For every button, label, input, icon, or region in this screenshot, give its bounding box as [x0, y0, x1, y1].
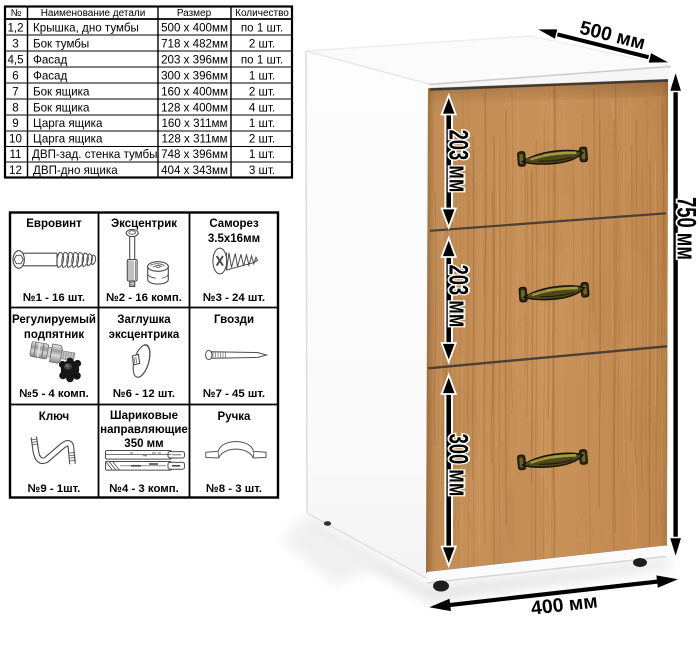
svg-text:№2 - 16 комп.: №2 - 16 комп. — [106, 292, 182, 304]
svg-text:по 1 шт.: по 1 шт. — [241, 54, 283, 67]
svg-text:подпятник: подпятник — [24, 329, 84, 341]
svg-text:ДВП-дно ящика: ДВП-дно ящика — [33, 164, 118, 177]
svg-text:№6 - 12 шт.: №6 - 12 шт. — [113, 388, 175, 400]
svg-text:1 шт.: 1 шт. — [249, 70, 275, 83]
svg-text:Заглушка: Заглушка — [117, 314, 171, 326]
svg-text:Фасад: Фасад — [33, 54, 68, 67]
svg-text:718 х 482мм: 718 х 482мм — [161, 38, 228, 51]
svg-text:№1 - 16 шт.: №1 - 16 шт. — [23, 292, 85, 304]
svg-text:Бок ящика: Бок ящика — [33, 102, 90, 115]
svg-text:Гвозди: Гвозди — [214, 314, 254, 326]
svg-text:12: 12 — [9, 164, 22, 177]
svg-text:8: 8 — [12, 102, 18, 115]
svg-text:2 шт.: 2 шт. — [249, 86, 275, 99]
svg-text:7: 7 — [12, 86, 18, 99]
svg-text:по 1 шт.: по 1 шт. — [241, 22, 283, 35]
svg-text:1 шт.: 1 шт. — [249, 117, 275, 130]
svg-text:203 мм: 203 мм — [444, 265, 474, 328]
svg-text:4 шт.: 4 шт. — [249, 102, 275, 115]
svg-text:160 х 400мм: 160 х 400мм — [161, 86, 228, 99]
svg-text:3: 3 — [12, 38, 18, 51]
svg-text:203 мм: 203 мм — [444, 130, 474, 193]
svg-text:11: 11 — [9, 148, 21, 161]
svg-text:Бок ящика: Бок ящика — [33, 86, 90, 99]
svg-text:Эксцентрик: Эксцентрик — [111, 218, 177, 230]
svg-text:Евровинт: Евровинт — [26, 218, 82, 230]
svg-text:3.5х16мм: 3.5х16мм — [208, 233, 260, 245]
svg-text:ДВП-зад. стенка тумбы: ДВП-зад. стенка тумбы — [32, 148, 158, 161]
svg-text:404 х 343мм: 404 х 343мм — [161, 164, 228, 177]
svg-text:Саморез: Саморез — [209, 218, 259, 230]
svg-text:Шариковые: Шариковые — [110, 410, 178, 422]
svg-text:1,2: 1,2 — [7, 22, 23, 35]
svg-text:350 мм: 350 мм — [124, 438, 163, 450]
svg-text:Царга ящика: Царга ящика — [33, 117, 103, 130]
svg-text:№8 - 3 шт.: №8 - 3 шт. — [206, 483, 262, 495]
svg-text:128 х 400мм: 128 х 400мм — [161, 102, 228, 115]
svg-text:Количество: Количество — [235, 8, 289, 19]
svg-text:№: № — [11, 8, 22, 19]
svg-text:№3 - 24 шт.: №3 - 24 шт. — [203, 292, 265, 304]
svg-text:эксцентрика: эксцентрика — [109, 329, 180, 341]
svg-text:300 мм: 300 мм — [444, 434, 474, 497]
svg-text:750 мм: 750 мм — [672, 197, 700, 260]
svg-text:2 шт.: 2 шт. — [249, 133, 275, 146]
svg-text:направляющие: направляющие — [100, 424, 188, 436]
svg-text:203 х 396мм: 203 х 396мм — [161, 54, 228, 67]
svg-text:№5 - 4 комп.: №5 - 4 комп. — [19, 388, 88, 400]
svg-text:300 х 396мм: 300 х 396мм — [161, 70, 228, 83]
svg-text:Крышка, дно тумбы: Крышка, дно тумбы — [33, 22, 139, 35]
svg-text:4,5: 4,5 — [7, 54, 23, 67]
svg-text:Фасад: Фасад — [33, 70, 68, 83]
svg-text:2 шт.: 2 шт. — [249, 38, 275, 51]
svg-text:№7 - 45 шт.: №7 - 45 шт. — [203, 388, 265, 400]
svg-text:9: 9 — [12, 117, 18, 130]
svg-text:500 х 400мм: 500 х 400мм — [161, 22, 228, 35]
svg-text:10: 10 — [9, 133, 22, 146]
svg-text:Ручка: Ручка — [218, 411, 251, 423]
svg-text:748 х 396мм: 748 х 396мм — [161, 148, 228, 161]
svg-text:128 х 311мм: 128 х 311мм — [161, 133, 227, 146]
svg-text:Царга ящика: Царга ящика — [33, 133, 103, 146]
svg-text:Бок тумбы: Бок тумбы — [33, 38, 89, 51]
svg-text:Ключ: Ключ — [39, 411, 69, 423]
svg-text:№9 - 1шт.: №9 - 1шт. — [28, 483, 81, 495]
svg-text:№4 - 3 комп.: №4 - 3 комп. — [109, 483, 178, 495]
svg-text:Наименование детали: Наименование детали — [41, 8, 146, 19]
svg-text:1 шт.: 1 шт. — [249, 148, 275, 161]
svg-text:6: 6 — [12, 70, 18, 83]
svg-text:Размер: Размер — [177, 8, 212, 19]
svg-text:3 шт.: 3 шт. — [249, 164, 275, 177]
svg-text:Регулируемый: Регулируемый — [12, 314, 96, 326]
svg-text:160 х 311мм: 160 х 311мм — [161, 117, 227, 130]
